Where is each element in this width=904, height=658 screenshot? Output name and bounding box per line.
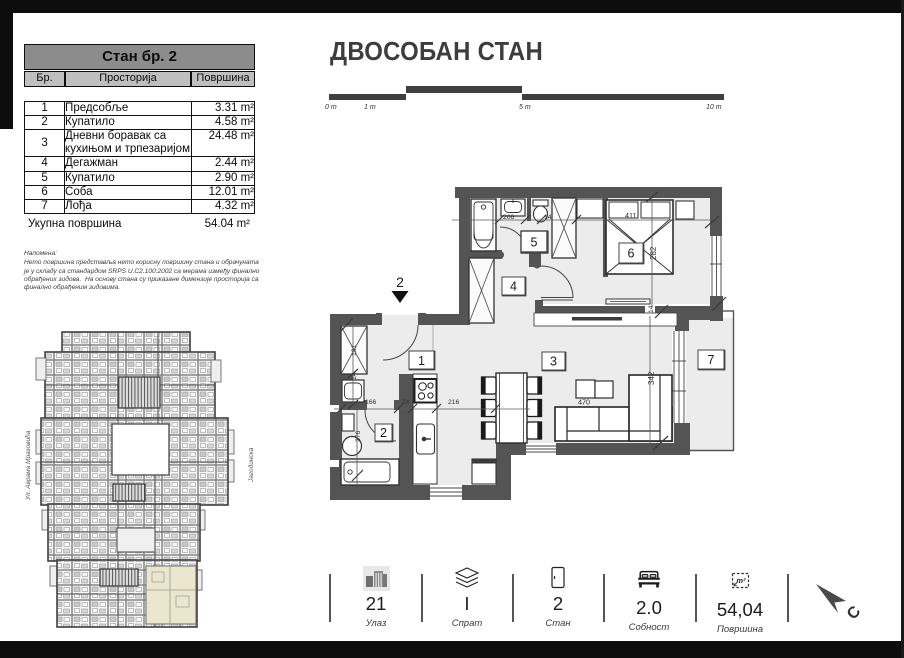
svg-text:С: С <box>844 603 865 623</box>
svg-text:14: 14 <box>648 305 655 313</box>
svg-text:342: 342 <box>647 371 656 385</box>
svg-text:411: 411 <box>625 211 636 220</box>
svg-text:24: 24 <box>402 399 410 406</box>
svg-text:276: 276 <box>355 430 362 442</box>
svg-text:3: 3 <box>550 355 557 369</box>
svg-text:166: 166 <box>365 399 377 406</box>
svg-text:282: 282 <box>649 246 658 260</box>
svg-text:Јагодинска: Јагодинска <box>247 447 255 483</box>
svg-text:5: 5 <box>531 236 538 250</box>
svg-text:131: 131 <box>351 344 358 356</box>
svg-text:1: 1 <box>418 354 425 368</box>
svg-text:14: 14 <box>351 372 358 380</box>
svg-text:216: 216 <box>448 399 460 406</box>
svg-text:7: 7 <box>708 353 715 367</box>
svg-text:2: 2 <box>396 274 404 290</box>
svg-text:2: 2 <box>380 426 387 440</box>
svg-text:4: 4 <box>510 280 517 294</box>
svg-text:14: 14 <box>544 214 552 221</box>
svg-text:206: 206 <box>503 214 515 221</box>
svg-text:Ул. Аврама Мразовића: Ул. Аврама Мразовића <box>24 430 32 501</box>
svg-text:m²: m² <box>736 576 746 585</box>
svg-text:470: 470 <box>578 398 590 407</box>
svg-text:6: 6 <box>628 247 635 261</box>
